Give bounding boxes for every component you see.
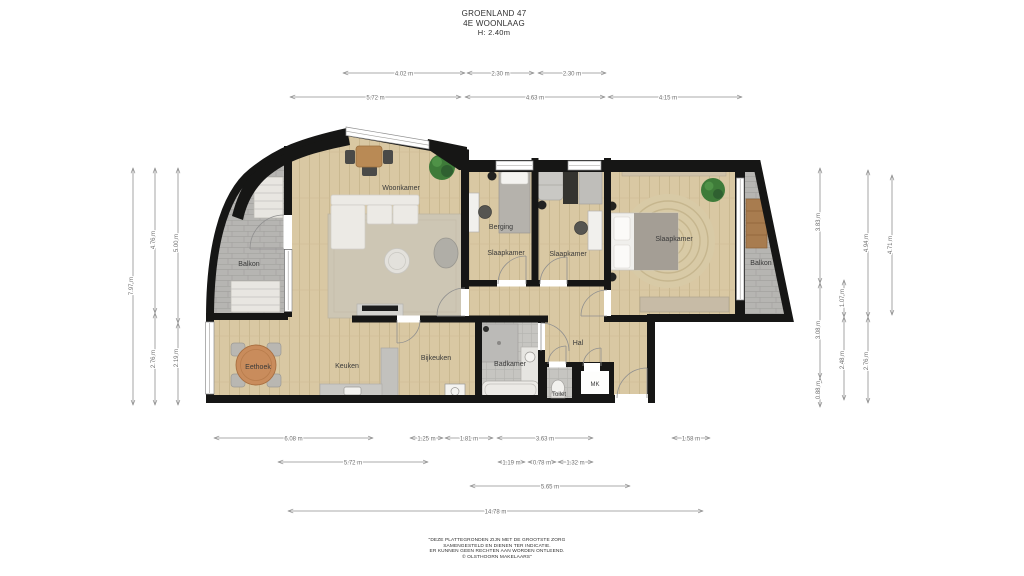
dimension-label: 4.94 m xyxy=(864,234,870,252)
lamp xyxy=(538,201,547,210)
dimension-label: 1.58 m xyxy=(682,437,700,443)
floorplan-page: GROENLAND 47 4E WOONLAAG H: 2.40m xyxy=(0,0,1024,576)
desk-chair xyxy=(479,206,492,219)
dimension-label: 3.63 m xyxy=(536,437,554,443)
dimension-label: 2.30 m xyxy=(563,72,581,78)
disclaimer: "DEZE PLATTEGRONDEN ZIJN MET DE GROOTSTE… xyxy=(0,538,994,560)
label-slaapkamer-2: Slaapkamer xyxy=(549,251,587,258)
dimension-label: 7.97 m xyxy=(129,277,135,295)
dimension-label: 1.19 m xyxy=(502,461,520,467)
dimension-label: 2.76 m xyxy=(864,352,870,370)
label-toilet: Toilet xyxy=(552,392,566,398)
dimension-label: 4.15 m xyxy=(659,96,677,102)
dimension-label: 0.88 m xyxy=(816,381,822,399)
label-balkon-right: Balkon xyxy=(750,260,772,267)
desk-chair xyxy=(575,222,588,235)
dimension-label: 4.63 m xyxy=(526,96,544,102)
label-hal: Hal xyxy=(573,340,584,347)
master-bottom-wall xyxy=(604,315,791,322)
dimensions-bottom: 6.08 m 1.25 m 1.81 m 3.63 m 1.58 m 5.72 … xyxy=(214,437,710,516)
floorplan-drawing: Woonkamer Balkon Berging Slaapkamer Slaa… xyxy=(0,0,1024,576)
dimension-label: 3.08 m xyxy=(816,321,822,339)
wardrobe xyxy=(563,167,578,204)
tv-screen xyxy=(362,306,398,312)
kitchen-divider xyxy=(381,348,398,400)
dresser xyxy=(579,167,602,204)
lamp xyxy=(488,172,497,181)
dimension-label: 0.78 m xyxy=(533,461,551,467)
label-bijkeuken: Bijkeuken xyxy=(421,355,451,362)
label-berging: Berging xyxy=(489,224,513,231)
plant xyxy=(701,178,725,202)
dimension-label: 4.76 m xyxy=(151,231,157,249)
dimension-label: 5.72 m xyxy=(344,461,362,467)
dimension-label: 14.78 m xyxy=(485,510,507,516)
dimension-label: 5.65 m xyxy=(541,485,559,491)
label-eethoek: Eethoek xyxy=(245,364,271,371)
dimensions-right: 3.83 m 3.08 m 0.88 m 1.07 m 2.48 m 4.94 … xyxy=(816,168,894,407)
label-mk: MK xyxy=(591,382,600,388)
dimension-label: 1.32 m xyxy=(566,461,584,467)
label-woonkamer: Woonkamer xyxy=(382,185,420,192)
dimensions-left: 7.97 m 4.76 m 2.76 m 5.00 m 2.19 m xyxy=(129,168,180,405)
dimension-label: 1.81 m xyxy=(460,437,478,443)
hall-east-wall xyxy=(648,318,655,403)
dimension-label: 1.25 m xyxy=(417,437,435,443)
armchair xyxy=(434,238,458,268)
dimension-label: 4.71 m xyxy=(888,236,894,254)
label-slaapkamer-master: Slaapkamer xyxy=(655,236,693,243)
dimension-label: 5.00 m xyxy=(174,234,180,252)
dimension-label: 1.07 m xyxy=(840,289,846,307)
label-keuken: Keuken xyxy=(335,363,359,370)
kitchen-top-wall xyxy=(352,316,548,323)
label-badkamer: Badkamer xyxy=(494,361,527,368)
bedroom1-bedroom2-wall xyxy=(532,158,539,284)
label-balkon-left: Balkon xyxy=(238,261,260,268)
lounger xyxy=(231,281,280,312)
bathroom-west-wall xyxy=(475,318,482,400)
kitchen-sink xyxy=(344,387,361,395)
bedrooms-corridor-wall xyxy=(461,280,611,287)
disclaimer-line: © OLSTHOORN MAKELAARS" xyxy=(0,555,994,561)
dimension-label: 4.02 m xyxy=(395,72,413,78)
label-slaapkamer-1: Slaapkamer xyxy=(487,250,525,257)
bench xyxy=(640,297,729,312)
dimension-label: 2.76 m xyxy=(151,350,157,368)
dimension-label: 2.19 m xyxy=(174,349,180,367)
desk xyxy=(588,211,602,250)
balcony-left-bottom-wall xyxy=(206,313,288,320)
dimension-label: 3.83 m xyxy=(816,213,822,231)
dimension-label: 2.30 m xyxy=(491,72,509,78)
dimensions-top: 4.02 m 2.30 m 2.30 m 5.72 m 4.63 m 4.15 … xyxy=(290,72,742,102)
dimension-label: 2.48 m xyxy=(840,351,846,369)
dimension-label: 5.72 m xyxy=(366,96,384,102)
dimension-label: 6.08 m xyxy=(284,437,302,443)
